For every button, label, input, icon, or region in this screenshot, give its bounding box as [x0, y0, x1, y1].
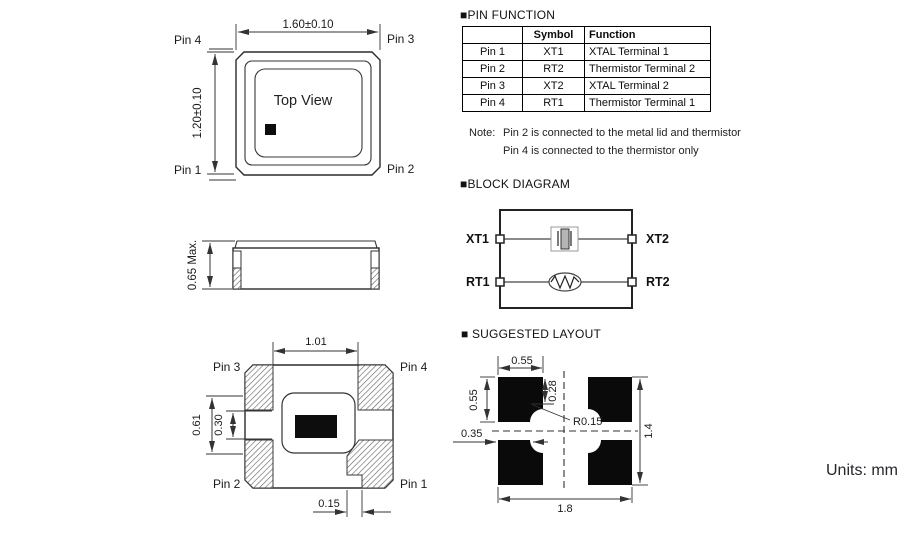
- crystal-blank: [295, 415, 337, 438]
- header-function: Function: [585, 27, 711, 44]
- table-row: Pin 4 RT1 Thermistor Terminal 1: [463, 95, 711, 112]
- left-terminal-hatch: [233, 268, 241, 289]
- layout-pad-top-left: [498, 377, 543, 422]
- port-rt1: [496, 278, 504, 286]
- function-cell: XTAL Terminal 2: [585, 78, 711, 95]
- port-xt1: [496, 235, 504, 243]
- header-symbol: Symbol: [523, 27, 585, 44]
- datasheet-page: 1.60±0.10 Pin 4 Pin 3 Top View 1.20±0.10…: [0, 0, 919, 545]
- layout-dim-radius: R0.15: [573, 416, 602, 428]
- top-view-pin4-label: Pin 4: [174, 33, 202, 47]
- function-cell: Thermistor Terminal 2: [585, 61, 711, 78]
- top-view-pin2-label: Pin 2: [387, 162, 415, 176]
- pin-cell: Pin 4: [463, 95, 523, 112]
- suggested-layout-title: ■ SUGGESTED LAYOUT: [461, 327, 601, 341]
- xt2-label: XT2: [646, 232, 669, 246]
- top-view-pin3-label: Pin 3: [387, 32, 415, 46]
- bottom-view-pin1-label: Pin 1: [400, 477, 428, 491]
- rt1-label: RT1: [466, 275, 490, 289]
- side-view-drawing: 0.65 Max.: [187, 240, 379, 291]
- table-row: Pin 1 XT1 XTAL Terminal 1: [463, 44, 711, 61]
- table-row: Pin 2 RT2 Thermistor Terminal 2: [463, 61, 711, 78]
- table-header-row: Symbol Function: [463, 27, 711, 44]
- bottom-dim-outer: 0.61: [191, 414, 203, 435]
- units-label: Units: mm: [826, 462, 898, 480]
- table-row: Pin 3 XT2 XTAL Terminal 2: [463, 78, 711, 95]
- note-line-2: Pin 4 is connected to the thermistor onl…: [503, 145, 699, 157]
- xt1-label: XT1: [466, 232, 489, 246]
- port-rt2: [628, 278, 636, 286]
- drawing-layer: 1.60±0.10 Pin 4 Pin 3 Top View 1.20±0.10…: [0, 0, 919, 545]
- block-diagram-box: [500, 210, 632, 308]
- rt2-label: RT2: [646, 275, 670, 289]
- block-diagram-drawing: XT1 XT2 RT1 RT2: [466, 210, 670, 308]
- top-view-label: Top View: [274, 93, 333, 109]
- symbol-cell: RT2: [523, 61, 585, 78]
- metal-lid: [235, 241, 377, 248]
- package-cavity: [255, 69, 362, 157]
- header-pin: [463, 27, 523, 44]
- pin1-index-mark: [265, 124, 276, 135]
- layout-pad-bottom-right: [588, 440, 632, 485]
- layout-dim-offset: 0.35: [461, 428, 482, 440]
- bottom-view-pin2-label: Pin 2: [213, 477, 241, 491]
- suggested-layout-drawing: 0.55 0.55 0.28 R0.15 0.35 1.4 1.8: [453, 355, 655, 515]
- bottom-view-pin4-label: Pin 4: [400, 360, 428, 374]
- port-xt2: [628, 235, 636, 243]
- symbol-cell: XT1: [523, 44, 585, 61]
- pad-pin3: [245, 365, 273, 410]
- note-line-1: Pin 2 is connected to the metal lid and …: [503, 127, 741, 139]
- top-view-height-dim: 1.20±0.10: [192, 87, 204, 138]
- pin-cell: Pin 3: [463, 78, 523, 95]
- right-terminal-hatch: [371, 268, 379, 289]
- pad-pin2: [245, 440, 273, 488]
- bottom-dim-inner: 0.30: [213, 414, 225, 435]
- top-view-width-dim: 1.60±0.10: [282, 19, 333, 31]
- layout-dim-pad-height: 0.55: [468, 389, 480, 410]
- side-view-height-dim: 0.65 Max.: [187, 240, 199, 291]
- bottom-dim-top: 1.01: [305, 336, 326, 348]
- pin-function-title: ■PIN FUNCTION: [460, 8, 555, 22]
- pin-function-table: Symbol Function Pin 1 XT1 XTAL Terminal …: [462, 26, 711, 112]
- function-cell: XTAL Terminal 1: [585, 44, 711, 61]
- block-diagram-title: ■BLOCK DIAGRAM: [460, 177, 570, 191]
- top-view-pin1-label: Pin 1: [174, 163, 202, 177]
- layout-dim-pad-width: 0.55: [511, 355, 532, 367]
- function-cell: Thermistor Terminal 1: [585, 95, 711, 112]
- bottom-dim-notch: 0.15: [318, 498, 339, 510]
- crystal-element: [561, 229, 569, 249]
- layout-pad-bottom-left: [498, 440, 543, 485]
- side-body: [233, 248, 379, 289]
- pad-pin4: [358, 365, 393, 410]
- symbol-cell: XT2: [523, 78, 585, 95]
- pin-cell: Pin 1: [463, 44, 523, 61]
- layout-dim-notch: 0.28: [547, 380, 559, 401]
- pin-cell: Pin 2: [463, 61, 523, 78]
- bottom-view-drawing: 1.01 Pin 3 Pin 4 0.61 0.30 Pin 2 Pin 1 0…: [191, 336, 428, 517]
- symbol-cell: RT1: [523, 95, 585, 112]
- top-view-drawing: 1.60±0.10 Pin 4 Pin 3 Top View 1.20±0.10…: [174, 19, 415, 180]
- layout-dim-total-width: 1.8: [557, 503, 572, 515]
- layout-dim-total-height: 1.4: [643, 423, 655, 438]
- bottom-view-pin3-label: Pin 3: [213, 360, 241, 374]
- note-label: Note:: [469, 127, 495, 139]
